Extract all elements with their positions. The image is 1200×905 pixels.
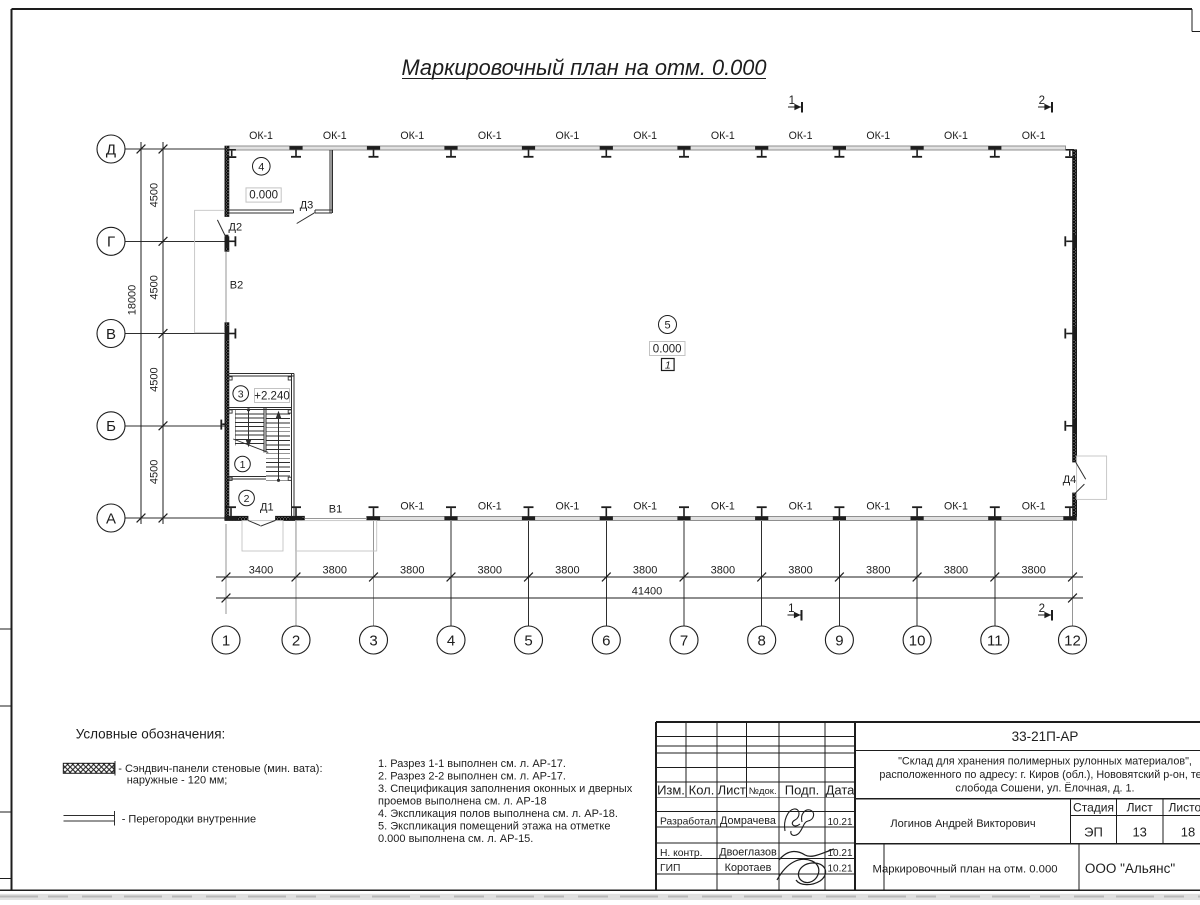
svg-text:+2.240: +2.240	[254, 390, 290, 402]
svg-text:4: 4	[447, 632, 455, 649]
svg-text:ОК-1: ОК-1	[866, 501, 890, 513]
svg-text:1: 1	[240, 459, 246, 471]
svg-text:ОК-1: ОК-1	[249, 130, 273, 142]
svg-text:2: 2	[1039, 95, 1045, 107]
svg-text:Д2: Д2	[229, 222, 243, 234]
svg-text:41400: 41400	[632, 586, 663, 598]
svg-text:3800: 3800	[711, 565, 735, 577]
svg-text:10: 10	[909, 632, 926, 649]
svg-text:- Сэндвич-панели стеновые (мин: - Сэндвич-панели стеновые (мин. вата):	[118, 763, 322, 775]
svg-text:2: 2	[292, 632, 300, 649]
svg-text:№док.: №док.	[749, 786, 777, 797]
svg-text:Кол.: Кол.	[689, 783, 715, 798]
svg-text:наружные - 120 мм;: наружные - 120 мм;	[127, 775, 228, 787]
svg-text:Изм.: Изм.	[657, 783, 685, 798]
svg-text:Логинов Андрей Викторович: Логинов Андрей Викторович	[890, 818, 1035, 830]
svg-text:Лист: Лист	[1127, 800, 1154, 814]
svg-text:ОК-1: ОК-1	[1022, 130, 1046, 142]
svg-text:3400: 3400	[249, 565, 273, 577]
svg-text:расположенного по адресу: г. К: расположенного по адресу: г. Киров (обл.…	[879, 769, 1200, 781]
svg-text:Маркировочный план на отм. 0.0: Маркировочный план на отм. 0.000	[401, 55, 766, 80]
svg-text:Коротаев: Коротаев	[725, 862, 772, 874]
svg-text:ОК-1: ОК-1	[555, 501, 579, 513]
svg-text:слобода Сошени, ул. Ёлочная, д: слобода Сошени, ул. Ёлочная, д. 1.	[955, 783, 1134, 795]
svg-text:Листов: Листов	[1169, 800, 1200, 814]
svg-text:ОК-1: ОК-1	[478, 501, 502, 513]
svg-text:В2: В2	[230, 280, 243, 292]
svg-text:Д: Д	[106, 141, 116, 158]
svg-text:3800: 3800	[866, 565, 890, 577]
svg-text:3800: 3800	[323, 565, 347, 577]
svg-text:18: 18	[1181, 825, 1195, 840]
svg-text:ОК-1: ОК-1	[944, 130, 968, 142]
svg-text:1: 1	[665, 359, 671, 371]
svg-text:6: 6	[602, 632, 610, 649]
svg-text:ЭП: ЭП	[1084, 825, 1103, 840]
svg-text:3800: 3800	[944, 565, 968, 577]
svg-text:ОК-1: ОК-1	[866, 130, 890, 142]
svg-text:3: 3	[369, 632, 377, 649]
svg-text:ОК-1: ОК-1	[633, 501, 657, 513]
svg-text:ОК-1: ОК-1	[555, 130, 579, 142]
svg-text:ОК-1: ОК-1	[1022, 501, 1046, 513]
svg-text:ОК-1: ОК-1	[944, 501, 968, 513]
svg-text:10.21: 10.21	[827, 817, 852, 828]
svg-text:Д3: Д3	[300, 199, 314, 211]
svg-text:Подп.: Подп.	[785, 783, 820, 798]
svg-text:7: 7	[680, 632, 688, 649]
svg-text:- Перегородки внутренние: - Перегородки внутренние	[122, 813, 256, 825]
svg-text:ОК-1: ОК-1	[478, 130, 502, 142]
svg-text:1: 1	[222, 632, 230, 649]
svg-text:11: 11	[987, 632, 1003, 649]
svg-text:Д1: Д1	[260, 501, 274, 513]
svg-text:Разработал: Разработал	[660, 816, 716, 828]
svg-text:4. Экспликация полов выполнена: 4. Экспликация полов выполнена см. л. АР…	[378, 808, 618, 820]
svg-text:Двоеглазов: Двоеглазов	[719, 846, 777, 858]
svg-text:Г: Г	[107, 234, 115, 251]
svg-text:0.000: 0.000	[653, 343, 682, 355]
svg-text:5: 5	[664, 320, 670, 332]
svg-text:ОК-1: ОК-1	[789, 130, 813, 142]
svg-text:4500: 4500	[149, 367, 161, 391]
svg-text:ОК-1: ОК-1	[711, 501, 735, 513]
svg-text:1: 1	[789, 95, 795, 107]
svg-text:Дата: Дата	[826, 783, 856, 798]
svg-text:Н. контр.: Н. контр.	[660, 848, 703, 859]
svg-text:А: А	[106, 510, 116, 527]
svg-text:2. Разрез 2-2 выполнен см. л.: 2. Разрез 2-2 выполнен см. л. АР-17.	[378, 770, 566, 782]
svg-text:ООО "Альянс": ООО "Альянс"	[1085, 861, 1175, 876]
svg-text:4500: 4500	[149, 183, 161, 207]
svg-text:Д4: Д4	[1063, 474, 1077, 486]
svg-text:3800: 3800	[478, 565, 502, 577]
svg-text:Условные обозначения:: Условные обозначения:	[76, 726, 226, 741]
svg-text:Маркировочный план на отм. 0.0: Маркировочный план на отм. 0.000	[872, 863, 1057, 875]
svg-text:2: 2	[1039, 603, 1045, 615]
svg-text:3800: 3800	[633, 565, 657, 577]
svg-text:Б: Б	[106, 418, 116, 435]
svg-text:1: 1	[788, 603, 794, 615]
svg-text:4500: 4500	[149, 275, 161, 299]
svg-text:1. Разрез 1-1 выполнен см. л.: 1. Разрез 1-1 выполнен см. л. АР-17.	[378, 758, 566, 770]
svg-text:Домрачева: Домрачева	[720, 815, 776, 827]
svg-text:4: 4	[258, 161, 264, 173]
svg-text:В: В	[106, 326, 116, 343]
svg-text:8: 8	[758, 632, 766, 649]
svg-text:ОК-1: ОК-1	[633, 130, 657, 142]
svg-text:3. Спецификация заполнения око: 3. Спецификация заполнения оконных и две…	[378, 783, 633, 795]
svg-text:В1: В1	[329, 503, 342, 515]
svg-text:3800: 3800	[1021, 565, 1045, 577]
svg-text:33-21П-АР: 33-21П-АР	[1012, 729, 1079, 744]
svg-text:ОК-1: ОК-1	[400, 501, 424, 513]
svg-text:ОК-1: ОК-1	[323, 130, 347, 142]
svg-text:4500: 4500	[149, 460, 161, 484]
svg-text:ОК-1: ОК-1	[711, 130, 735, 142]
svg-text:2: 2	[244, 493, 250, 505]
svg-text:3800: 3800	[555, 565, 579, 577]
svg-text:9: 9	[835, 632, 843, 649]
svg-text:ГИП: ГИП	[660, 863, 680, 874]
svg-text:0.000 выполнена см. л. АР-15.: 0.000 выполнена см. л. АР-15.	[378, 833, 533, 845]
svg-text:0.000: 0.000	[249, 190, 278, 202]
svg-text:10.21: 10.21	[827, 863, 852, 874]
svg-text:"Склад для хранения полимерных: "Склад для хранения полимерных рулонных …	[898, 756, 1192, 768]
svg-text:5. Экспликация помещений этажа: 5. Экспликация помещений этажа на отметк…	[378, 820, 610, 832]
svg-text:ОК-1: ОК-1	[789, 501, 813, 513]
svg-text:12: 12	[1064, 632, 1081, 649]
svg-text:Стадия: Стадия	[1073, 800, 1114, 814]
svg-text:3800: 3800	[400, 565, 424, 577]
svg-text:5: 5	[524, 632, 532, 649]
svg-text:Лист: Лист	[718, 783, 746, 798]
svg-text:ОК-1: ОК-1	[400, 130, 424, 142]
svg-text:проемов выполнена см. л. АР-18: проемов выполнена см. л. АР-18	[378, 795, 547, 807]
svg-text:3: 3	[238, 389, 244, 401]
svg-text:13: 13	[1132, 825, 1146, 840]
svg-text:18000: 18000	[127, 285, 139, 316]
svg-text:3800: 3800	[788, 565, 812, 577]
